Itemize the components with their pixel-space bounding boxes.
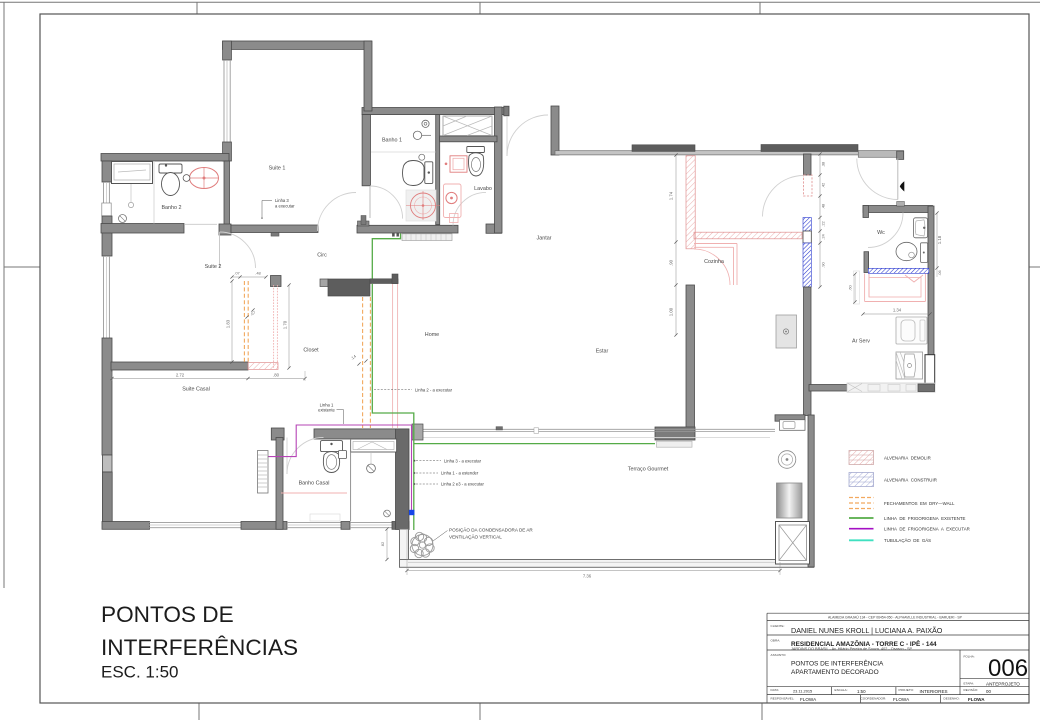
- svg-text:1.83: 1.83: [226, 319, 231, 328]
- svg-text:.06: .06: [938, 270, 942, 275]
- svg-text:.42: .42: [821, 182, 826, 188]
- svg-text:existente: existente: [318, 407, 335, 412]
- svg-text:1.00: 1.00: [669, 307, 674, 316]
- svg-text:Estar: Estar: [596, 349, 609, 355]
- svg-text:APARTAMENTO DECORADO: APARTAMENTO DECORADO: [791, 669, 879, 676]
- svg-text:.80: .80: [273, 373, 280, 378]
- svg-text:REVISÃO:: REVISÃO:: [964, 687, 979, 692]
- svg-text:Linha 2 e3 - a executar: Linha 2 e3 - a executar: [441, 482, 484, 487]
- svg-text:FOLHA:: FOLHA:: [964, 655, 975, 659]
- svg-text:1.18: 1.18: [937, 235, 942, 244]
- svg-text:JARDINS DO BRASIL - Av. Hilári: JARDINS DO BRASIL - Av. Hilário Pereira …: [791, 647, 913, 651]
- svg-text:1:50: 1:50: [857, 689, 866, 694]
- svg-text:Ar Serv: Ar Serv: [852, 339, 870, 345]
- svg-text:POSIÇÃO DA CONDENSADORA DE AR: POSIÇÃO DA CONDENSADORA DE AR: [449, 526, 533, 532]
- svg-text:Home: Home: [425, 332, 439, 338]
- svg-text:.24: .24: [821, 233, 826, 239]
- svg-text:COORDENADOR:: COORDENADOR:: [861, 696, 887, 700]
- svg-text:ESC. 1:50: ESC. 1:50: [101, 663, 179, 682]
- svg-text:Linha 3 - a executar: Linha 3 - a executar: [444, 458, 482, 463]
- svg-text:FLOWA: FLOWA: [893, 697, 910, 702]
- svg-text:Suite 1: Suite 1: [269, 166, 286, 172]
- svg-text:ALVENARIA DEMOLIR: ALVENARIA DEMOLIR: [884, 455, 931, 460]
- svg-text:23.11.2015: 23.11.2015: [793, 689, 812, 694]
- svg-text:.22: .22: [821, 220, 826, 226]
- svg-text:00: 00: [986, 689, 991, 694]
- svg-text:PONTOS DE: PONTOS DE: [101, 602, 234, 627]
- svg-text:RESPONSÁVEL:: RESPONSÁVEL:: [771, 696, 795, 700]
- svg-text:ALAMEDA GRAJAÚ 134 - CEP 06454: ALAMEDA GRAJAÚ 134 - CEP 06454-050 - ALP…: [828, 615, 963, 620]
- svg-text:Suite Casal: Suite Casal: [182, 387, 210, 393]
- svg-text:DATA:: DATA:: [771, 688, 780, 692]
- svg-text:Jantar: Jantar: [537, 236, 552, 242]
- svg-text:PONTOS DE INTERFERÊNCIA: PONTOS DE INTERFERÊNCIA: [791, 658, 884, 667]
- svg-text:DANIEL NUNES KROLL | LUCIANA A: DANIEL NUNES KROLL | LUCIANA A. PAIXÃO: [791, 626, 943, 635]
- svg-text:Closet: Closet: [303, 348, 319, 354]
- svg-text:.48: .48: [821, 203, 826, 209]
- svg-text:2.72: 2.72: [176, 373, 185, 378]
- svg-text:FECHAMENTOS EM DRY—WALL: FECHAMENTOS EM DRY—WALL: [884, 501, 955, 506]
- svg-text:ESCALA:: ESCALA:: [835, 688, 848, 692]
- svg-text:.60: .60: [848, 284, 853, 290]
- svg-text:Suite 2: Suite 2: [205, 264, 222, 270]
- svg-text:Terraço Gourmet: Terraço Gourmet: [628, 467, 669, 473]
- svg-text:Wc: Wc: [877, 230, 885, 236]
- svg-text:ASSUNTO:: ASSUNTO:: [771, 653, 787, 657]
- svg-text:PROJETO:: PROJETO:: [899, 688, 915, 692]
- svg-text:.48: .48: [255, 271, 261, 276]
- svg-text:DESENHO:: DESENHO:: [944, 696, 960, 700]
- svg-text:7.36: 7.36: [583, 574, 592, 579]
- svg-text:LINHA DE FRIGORIGENA A EXE: LINHA DE FRIGORIGENA A EXECUTAR: [884, 527, 970, 532]
- svg-text:Linha 2 - a executar: Linha 2 - a executar: [415, 387, 453, 392]
- svg-text:Banho 2: Banho 2: [161, 205, 181, 211]
- svg-text:ANTEPROJETO: ANTEPROJETO: [986, 682, 1020, 687]
- svg-text:LINHA DE FRIGORIGENA EXISTE: LINHA DE FRIGORIGENA EXISTENTE: [884, 516, 966, 521]
- svg-text:Banho Casal: Banho Casal: [299, 481, 330, 487]
- svg-text:FLOWA: FLOWA: [800, 697, 817, 702]
- svg-text:1.70: 1.70: [283, 320, 288, 329]
- svg-text:Linha 1 - a estender: Linha 1 - a estender: [441, 471, 479, 476]
- svg-text:82: 82: [380, 541, 385, 546]
- svg-text:Cozinha: Cozinha: [704, 259, 724, 265]
- svg-text:FLOWA: FLOWA: [968, 697, 985, 702]
- svg-text:Circ: Circ: [317, 253, 327, 259]
- svg-text:.90: .90: [669, 259, 674, 266]
- svg-text:TUBULAÇÃO DE GÁS: TUBULAÇÃO DE GÁS: [884, 538, 931, 543]
- svg-text:INTERFERÊNCIAS: INTERFERÊNCIAS: [101, 635, 298, 660]
- svg-text:VENTILAÇÃO VERTICAL: VENTILAÇÃO VERTICAL: [449, 533, 502, 539]
- svg-text:.07: .07: [234, 271, 240, 276]
- svg-text:CLIENTE:: CLIENTE:: [771, 624, 785, 628]
- svg-text:OBRA:: OBRA:: [771, 638, 781, 642]
- svg-text:.90: .90: [821, 261, 826, 267]
- svg-text:ETAPA:: ETAPA:: [964, 681, 975, 685]
- svg-text:Linha 3: Linha 3: [275, 198, 289, 203]
- svg-text:1.34: 1.34: [893, 308, 902, 313]
- svg-text:INTERIORES: INTERIORES: [920, 689, 948, 694]
- svg-text:1.74: 1.74: [669, 191, 674, 200]
- svg-text:Banho 1: Banho 1: [382, 138, 402, 144]
- svg-text:ALVENARIA CONSTRUIR: ALVENARIA CONSTRUIR: [884, 477, 937, 482]
- svg-text:.38: .38: [821, 161, 826, 167]
- svg-text:Lavabo: Lavabo: [474, 186, 492, 192]
- svg-text:006: 006: [988, 655, 1028, 682]
- svg-text:a executar: a executar: [275, 203, 295, 208]
